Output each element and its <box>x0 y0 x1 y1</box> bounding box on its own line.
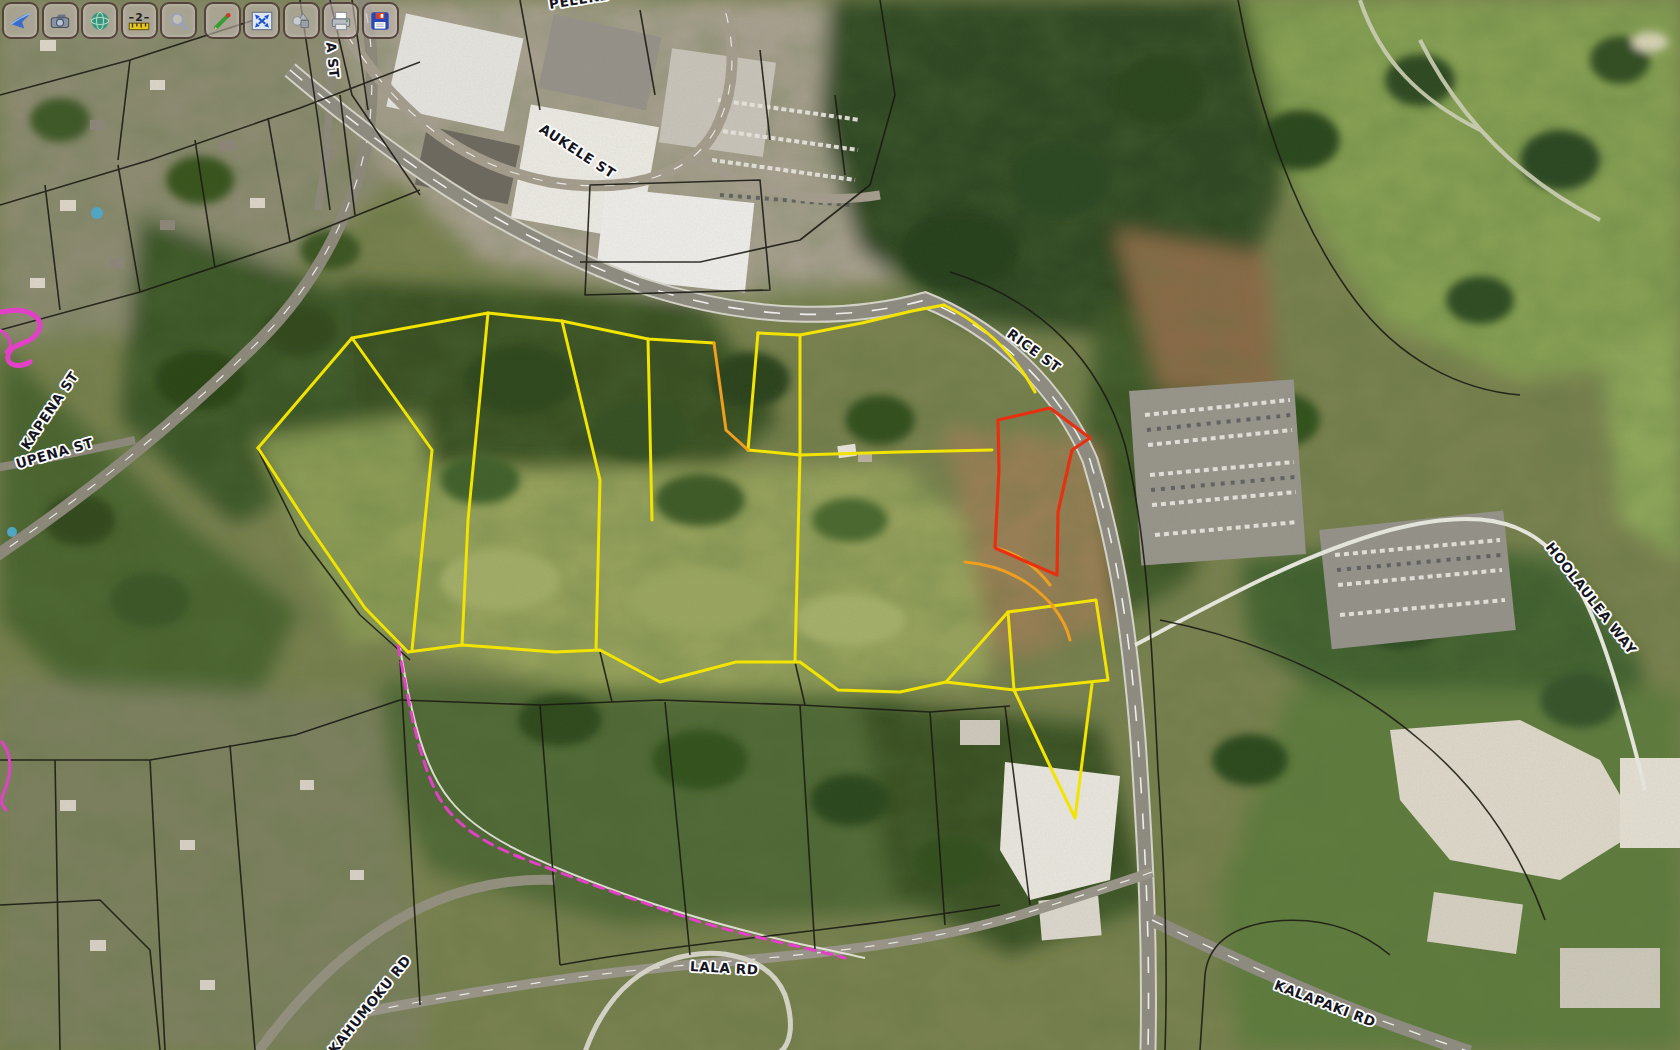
toolbar-button-layers[interactable] <box>81 2 118 39</box>
toolbar-button-tools[interactable] <box>283 2 320 39</box>
map-canvas[interactable]: PELEKE ST A ST AUKELE ST RICE ST KAPENA … <box>0 0 1680 1050</box>
map-toolbar: 2 <box>2 2 399 39</box>
svg-text:2: 2 <box>135 11 143 24</box>
zoom-extent-icon <box>249 8 275 34</box>
toolbar-button-measure[interactable]: 2 <box>121 2 158 39</box>
measure-icon: 2 <box>126 8 152 34</box>
toolbar-button-draw[interactable] <box>204 2 241 39</box>
toolbar-button-save[interactable] <box>362 2 399 39</box>
swoosh-navigate-icon <box>8 8 34 34</box>
toolbar-button-print[interactable] <box>322 2 359 39</box>
grain-texture <box>0 0 1680 1050</box>
camera-icon <box>47 8 73 34</box>
aerial-imagery <box>0 0 1680 1050</box>
globe-icon <box>87 8 113 34</box>
toolbar-button-zoom-extent[interactable] <box>243 2 280 39</box>
floppy-save-icon <box>367 8 393 34</box>
toolbar-button-navigate[interactable] <box>2 2 39 39</box>
pencil-draw-icon <box>209 8 235 34</box>
shapes-icon <box>288 8 314 34</box>
toolbar-button-zoom[interactable] <box>160 2 197 39</box>
toolbar-button-camera[interactable] <box>42 2 79 39</box>
printer-icon <box>328 8 354 34</box>
magnifier-icon <box>166 8 192 34</box>
